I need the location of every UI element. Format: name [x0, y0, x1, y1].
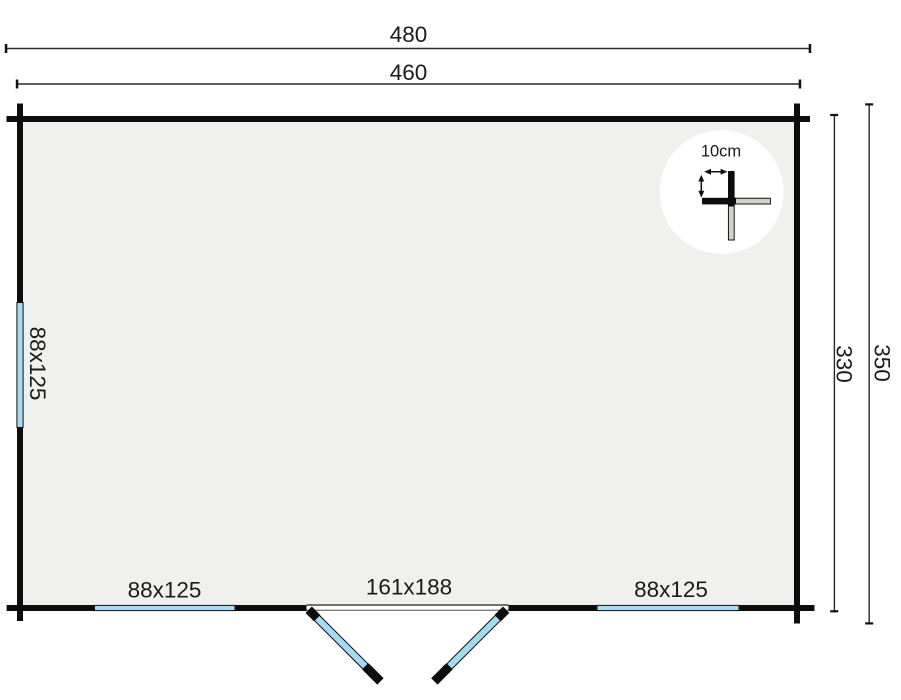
svg-text:330: 330 [832, 345, 857, 383]
svg-text:88x125: 88x125 [634, 577, 708, 602]
svg-text:460: 460 [390, 60, 428, 85]
svg-text:480: 480 [390, 22, 428, 47]
svg-text:10cm: 10cm [701, 143, 741, 161]
svg-text:350: 350 [870, 344, 895, 382]
svg-text:88x125: 88x125 [128, 578, 202, 603]
svg-text:88x125: 88x125 [25, 327, 50, 401]
svg-text:161x188: 161x188 [366, 575, 452, 600]
